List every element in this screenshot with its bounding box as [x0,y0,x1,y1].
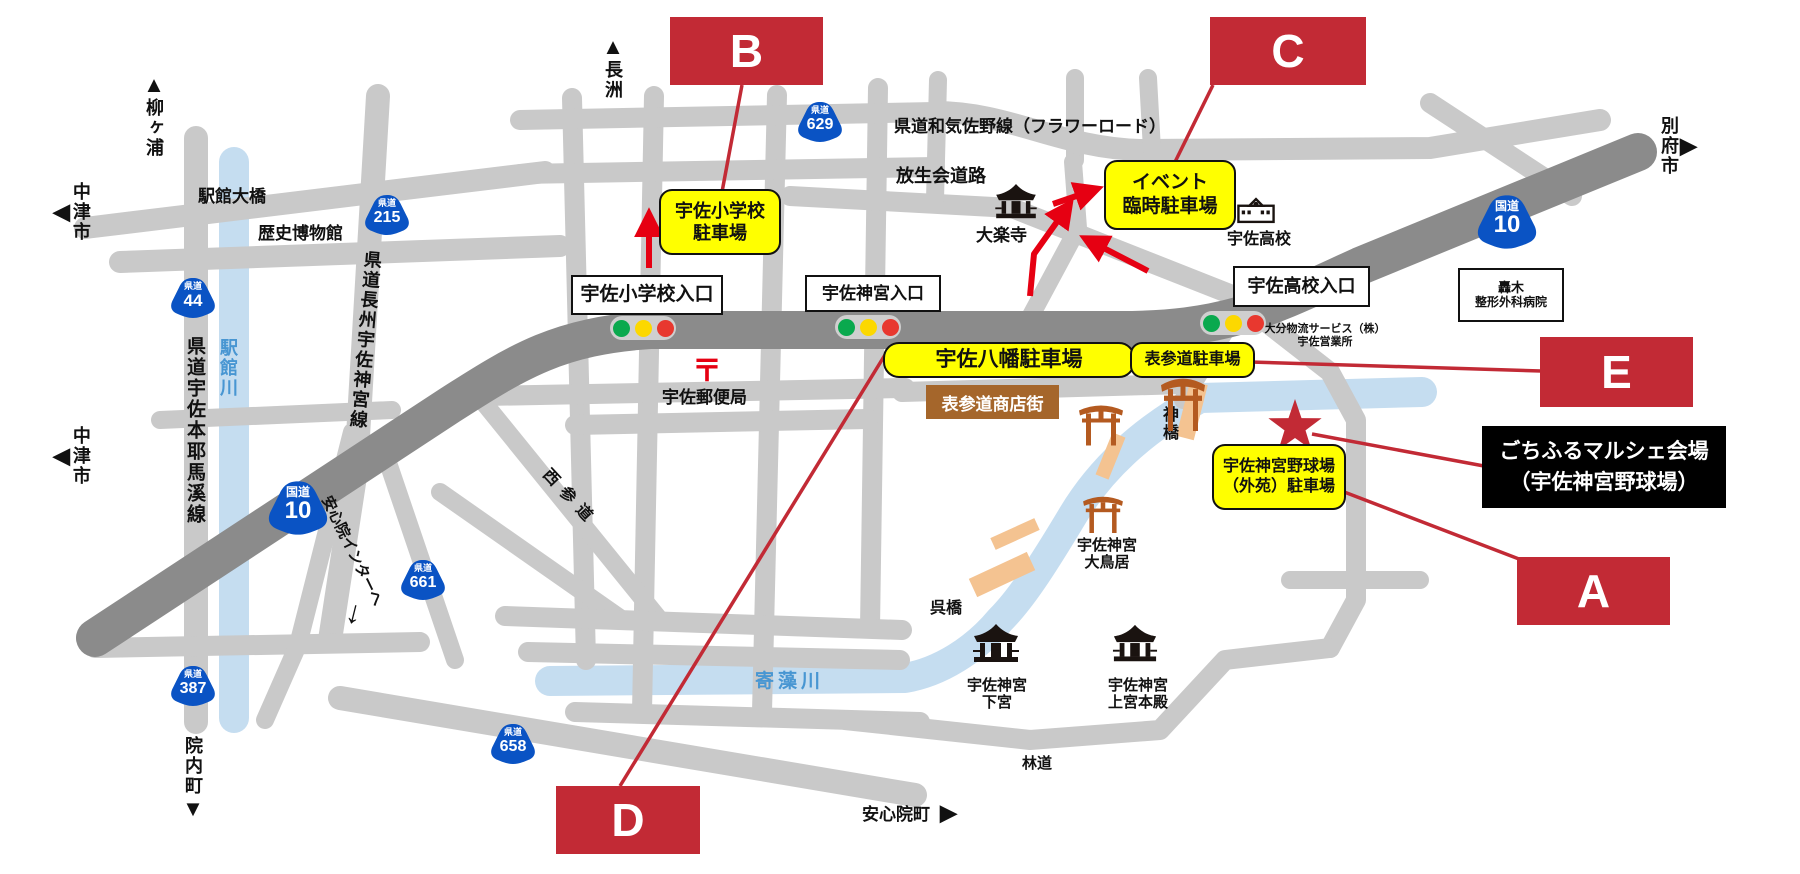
place-kurehashi: 呉橋 [930,594,962,618]
parking-badge-b: B [670,17,823,85]
label-line: 上宮本殿 [1108,694,1168,711]
venue-line: （宇佐神宮野球場） [1510,467,1699,499]
shield-number: 387 [169,681,217,697]
direction-yanagigaura: ▲ 柳ヶ浦 [135,74,173,158]
route-shield-44: 県道 44 [169,275,217,321]
signal-green-light [1203,315,1220,332]
shield-number: 10 [266,499,330,523]
label-gaien-parking: 宇佐神宮野球場 （外苑）駐車場 [1212,444,1346,510]
place-otorii: 宇佐神宮 大鳥居 [1062,537,1152,572]
direction-label: 院内町 [184,736,202,796]
torii-icon-shinbashi [1161,376,1205,431]
parking-badge-a: A [1517,557,1670,625]
box-jingu-entrance: 宇佐神宮入口 [805,275,941,312]
direction-label: 安心院町 [862,800,930,825]
temple-icon-jogu [1112,624,1158,664]
place-post-office: 宇佐郵便局 [662,383,747,408]
river-name-yakkan: 駅館川 [219,338,237,398]
direction-label: 中津市 [72,426,90,486]
box-text: 宇佐小学校入口 [580,284,713,306]
parking-badge-c: C [1210,17,1366,85]
label-event-parking: イベント 臨時駐車場 [1104,160,1236,230]
down-triangle-icon: ▼ [182,798,204,820]
label-shopping-street: 表参道商店街 [926,385,1059,419]
label-line: イベント [1132,171,1208,195]
direction-label: 柳ヶ浦 [145,98,163,158]
box-elementary-entrance: 宇佐小学校入口 [571,275,723,315]
label-hachiman-parking: 宇佐八幡駐車場 [883,342,1135,378]
access-map: 県道 215 県道 44 県道 629 県道 661 県道 387 県道 658… [0,0,1800,874]
label-line: 宇佐小学校 [675,200,765,223]
road-name-flower-road: 県道和気佐野線（フラワーロード） [894,112,1166,137]
signal-yellow-light [635,320,652,337]
direction-innai: 院内町 ▼ [174,736,212,820]
route-shield-661: 県道 661 [399,557,447,603]
box-text: 轟木 [1498,281,1524,296]
direction-nakatsu-south: ◀ 中津市 [53,426,90,486]
direction-ajimu: 安心院町 ▶ [862,800,957,825]
signal-green-light [838,319,855,336]
road-name-yabakei: 県道宇佐本耶馬溪線 [185,336,204,525]
label-line: 宇佐八幡駐車場 [936,347,1083,373]
box-text: 宇佐高校入口 [1248,276,1356,297]
river-name-yorimo: 寄藻川 [755,666,824,693]
label-line: 表参道商店街 [942,390,1044,415]
right-triangle-icon: ▶ [1680,135,1697,157]
direction-beppu: 別府市 ▶ [1660,116,1697,176]
shield-number: 629 [796,117,844,133]
shield-number: 215 [363,210,411,226]
direction-label: 長洲 [604,60,622,100]
label-line: 大鳥居 [1084,554,1129,571]
label-elementary-parking: 宇佐小学校 駐車場 [659,189,781,255]
route-shield-629: 県道 629 [796,99,844,145]
label-omotesando-parking: 表参道駐車場 [1130,342,1255,378]
place-museum: 歴史博物館 [258,219,343,244]
route-shield-10-west: 国道 10 [266,478,330,538]
signal-red-light [657,320,674,337]
parking-badge-d: D [556,786,700,854]
label-line: 大分物流サービス（株） [1265,323,1386,335]
place-logistics: 大分物流サービス（株） 宇佐営業所 [1263,323,1387,349]
direction-label: 中津市 [72,182,90,242]
signal-red-light [1247,315,1264,332]
shield-type: 県道 [489,728,537,737]
temple-icon-gegu [972,624,1020,664]
venue-line: ごちふるマルシェ会場 [1499,436,1708,468]
shield-number: 44 [169,292,217,309]
label-line: 臨時駐車場 [1122,195,1217,219]
signal-yellow-light [860,319,877,336]
route-shield-215: 県道 215 [363,192,411,238]
direction-label: 別府市 [1660,116,1678,176]
torii-icon-middle [1079,402,1123,447]
direction-nagasu: ▲ 長洲 [594,36,632,100]
school-icon-usa-highschool [1237,197,1275,224]
shield-type: 県道 [169,670,217,679]
box-hospital: 轟木 整形外科病院 [1458,268,1564,322]
right-triangle-icon: ▶ [940,802,957,824]
shield-number: 658 [489,739,537,755]
label-line: 宇佐神宮野球場 [1223,457,1335,477]
shield-type: 県道 [796,106,844,115]
signal-green-light [613,320,630,337]
label-line: （外苑）駐車場 [1223,477,1335,497]
box-highschool-entrance: 宇佐高校入口 [1233,266,1370,307]
shield-type: 県道 [399,564,447,573]
label-line: 表参道駐車場 [1144,350,1240,370]
label-line: 宇佐営業所 [1298,336,1353,348]
shield-type: 県道 [363,199,411,208]
route-shield-10-east: 国道 10 [1475,192,1539,252]
road-name-ohashi: 駅館大橋 [198,182,266,207]
place-dairakuji: 大楽寺 [976,221,1027,246]
up-triangle-icon: ▲ [602,36,624,58]
label-line: 下宮 [982,694,1012,711]
left-triangle-icon: ◀ [53,201,70,223]
venue-callout: ごちふるマルシェ会場 （宇佐神宮野球場） [1482,426,1726,508]
label-line: 宇佐神宮 [967,677,1027,694]
signal-yellow-light [1225,315,1242,332]
signal-red-light [882,319,899,336]
place-jogu: 宇佐神宮 上宮本殿 [1083,677,1193,712]
route-shield-387: 県道 387 [169,663,217,709]
label-line: 駐車場 [693,222,747,245]
traffic-signal-jingu [835,315,901,339]
left-triangle-icon: ◀ [53,445,70,467]
shield-number: 10 [1475,213,1539,237]
label-line: 宇佐神宮 [1108,677,1168,694]
traffic-signal-highschool [1200,311,1266,335]
label-line: 宇佐神宮 [1077,537,1137,554]
direction-nakatsu-north: ◀ 中津市 [53,182,90,242]
route-shield-658: 県道 658 [489,721,537,767]
road-name-rindo: 林道 [1022,752,1052,773]
place-gegu: 宇佐神宮 下宮 [950,677,1044,712]
place-highschool: 宇佐高校 [1227,225,1291,249]
traffic-signal-elementary [610,316,676,340]
box-text: 整形外科病院 [1475,296,1547,310]
parking-badge-e: E [1540,337,1693,407]
torii-icon-otorii [1081,495,1125,533]
up-triangle-icon: ▲ [143,74,165,96]
shield-type: 県道 [169,282,217,291]
temple-icon-dairakuji [993,184,1039,220]
road-name-hojoe: 放生会道路 [896,162,986,188]
box-text: 宇佐神宮入口 [822,284,924,304]
shield-number: 661 [399,575,447,591]
